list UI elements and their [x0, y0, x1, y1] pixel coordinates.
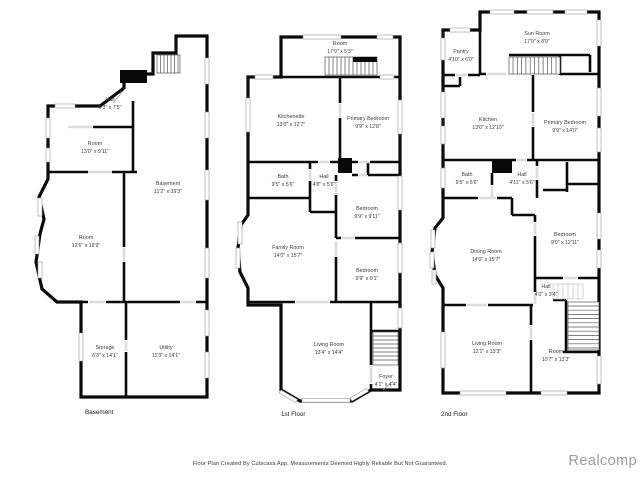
room-dims: 9'9" x 9'11" [354, 213, 379, 221]
room-name: Primary Bedroom [544, 119, 586, 127]
room-dims: 4'8" x 5'6" [313, 181, 336, 189]
room-label: Dining Room 14'0" x 15'7" [470, 248, 501, 264]
floorplan-canvas: Hall 6'3" x 7'5" Room 13'0" x 9'11" Base… [0, 0, 640, 480]
room-name: Hall [535, 283, 558, 291]
room-dims: 13'0" x 12'10" [472, 124, 503, 132]
room-name: Pantry [448, 48, 474, 56]
room-dims: 11'2" x 39'3" [154, 188, 182, 196]
room-dims: 10'7" x 13'3" [542, 356, 570, 364]
room-name: Bath [272, 173, 295, 181]
room-name: Kitchenette [277, 113, 305, 121]
room-dims: 9'5" x 5'6" [456, 179, 479, 187]
room-label: Kitchen 13'0" x 12'10" [472, 116, 503, 132]
room-label: Hall 6'3" x 7'5" [99, 96, 122, 112]
room-dims: 4'10" x 6'0" [448, 56, 474, 64]
room-dims: 6'3" x 14'1" [92, 352, 118, 360]
room-dims: 13'0" x 12'7" [277, 121, 305, 129]
room-name: Sun Room [524, 30, 550, 38]
room-name: Utility [152, 344, 180, 352]
room-name: Primary Bedroom [347, 115, 389, 123]
walls [36, 36, 207, 397]
room-dims: 9'9" x 12'11" [551, 239, 579, 247]
room-name: Foyer [375, 373, 398, 381]
room-dims: 6'3" x 7'5" [99, 104, 122, 112]
room-dims: 4'0" x 3'4" [535, 291, 558, 299]
room-dims: 9'9" x 9'1" [356, 275, 379, 283]
room-dims: 12'1" x 13'3" [472, 348, 502, 356]
room-label: Living Room 12'1" x 13'3" [472, 340, 502, 356]
room-label: Bath 9'5" x 5'6" [272, 173, 295, 189]
room-name: Room [327, 40, 353, 48]
room-dims: 11'3" x 14'1" [152, 352, 180, 360]
room-dims: 17'9" x 5'3" [327, 48, 353, 56]
room-dims: 13'4" x 14'4" [314, 349, 344, 357]
room-name: Hall [99, 96, 122, 104]
room-name: Storage [92, 344, 118, 352]
room-dims: 9'9" x 14'0" [544, 127, 586, 135]
realcomp-watermark: Realcomp [569, 453, 637, 469]
staircase-foyer [373, 332, 398, 365]
room-dims: 4'1" x 4'4" [375, 381, 398, 389]
room-label: Living Room 13'4" x 14'4" [314, 341, 344, 357]
room-dims: 14'0" x 15'7" [470, 256, 501, 264]
room-name: Family Room [272, 244, 304, 252]
room-label: Hall 4'11" x 5'6" [509, 171, 534, 187]
room-label: Bath 9'5" x 5'6" [456, 171, 479, 187]
room-name: Bedroom [356, 267, 379, 275]
room-label: Bedroom 9'9" x 9'1" [356, 267, 379, 283]
second-floor-plan [430, 10, 601, 395]
room-label: Storage 6'3" x 14'1" [92, 344, 118, 360]
room-name: Basement [154, 180, 182, 188]
room-name: Dining Room [470, 248, 501, 256]
room-label: Hall 4'8" x 5'6" [313, 173, 336, 189]
room-label: Utility 11'3" x 14'1" [152, 344, 180, 360]
room-dims: 9'9" x 12'8" [347, 123, 389, 131]
room-name: Living Room [314, 341, 344, 349]
floor-label-basement: Basement [85, 409, 113, 416]
room-label: Bedroom 9'9" x 12'11" [551, 231, 579, 247]
room-dims: 12'6" x 18'9" [72, 242, 100, 250]
room-dims: 17'9" x 8'9" [524, 38, 550, 46]
room-label: Basement 11'2" x 39'3" [154, 180, 182, 196]
room-label: Room 12'6" x 18'9" [72, 234, 100, 250]
room-dims: 14'0" x 15'7" [272, 252, 304, 260]
room-name: Bath [456, 171, 479, 179]
room-label: Pantry 4'10" x 6'0" [448, 48, 474, 64]
room-label: Hall 4'0" x 3'4" [535, 283, 558, 299]
room-name: Room [81, 140, 109, 148]
floor-label-2nd-floor: 2nd Floor [441, 411, 468, 418]
room-name: Room [542, 348, 570, 356]
room-label: Bedroom 9'9" x 9'11" [354, 205, 379, 221]
room-dims: 4'11" x 5'6" [509, 179, 534, 187]
room-label: Primary Bedroom 9'9" x 12'8" [347, 115, 389, 131]
disclaimer-text: Floor Plan Created By Cubicasa App. Meas… [0, 461, 640, 467]
staircase-sunroom [509, 57, 560, 74]
room-name: Hall [509, 171, 534, 179]
basement-plan [35, 36, 209, 397]
room-label: Room 13'0" x 9'11" [81, 140, 109, 156]
room-dims: 13'0" x 9'11" [81, 148, 109, 156]
room-name: Hall [313, 173, 336, 181]
room-name: Kitchen [472, 116, 503, 124]
staircase-upper [325, 57, 377, 75]
room-label: Family Room 14'0" x 15'7" [272, 244, 304, 260]
room-name: Room [72, 234, 100, 242]
room-label: Kitchenette 13'0" x 12'7" [277, 113, 305, 129]
room-label: Foyer 4'1" x 4'4" [375, 373, 398, 389]
room-name: Living Room [472, 340, 502, 348]
room-label: Room 10'7" x 13'3" [542, 348, 570, 364]
staircase [157, 55, 180, 73]
room-dims: 9'5" x 5'6" [272, 181, 295, 189]
floor-label-1st-floor: 1st Floor [281, 411, 306, 418]
room-label: Primary Bedroom 9'9" x 14'0" [544, 119, 586, 135]
room-name: Bedroom [551, 231, 579, 239]
room-label: Room 17'9" x 5'3" [327, 40, 353, 56]
room-name: Bedroom [354, 205, 379, 213]
room-label: Sun Room 17'9" x 8'9" [524, 30, 550, 46]
